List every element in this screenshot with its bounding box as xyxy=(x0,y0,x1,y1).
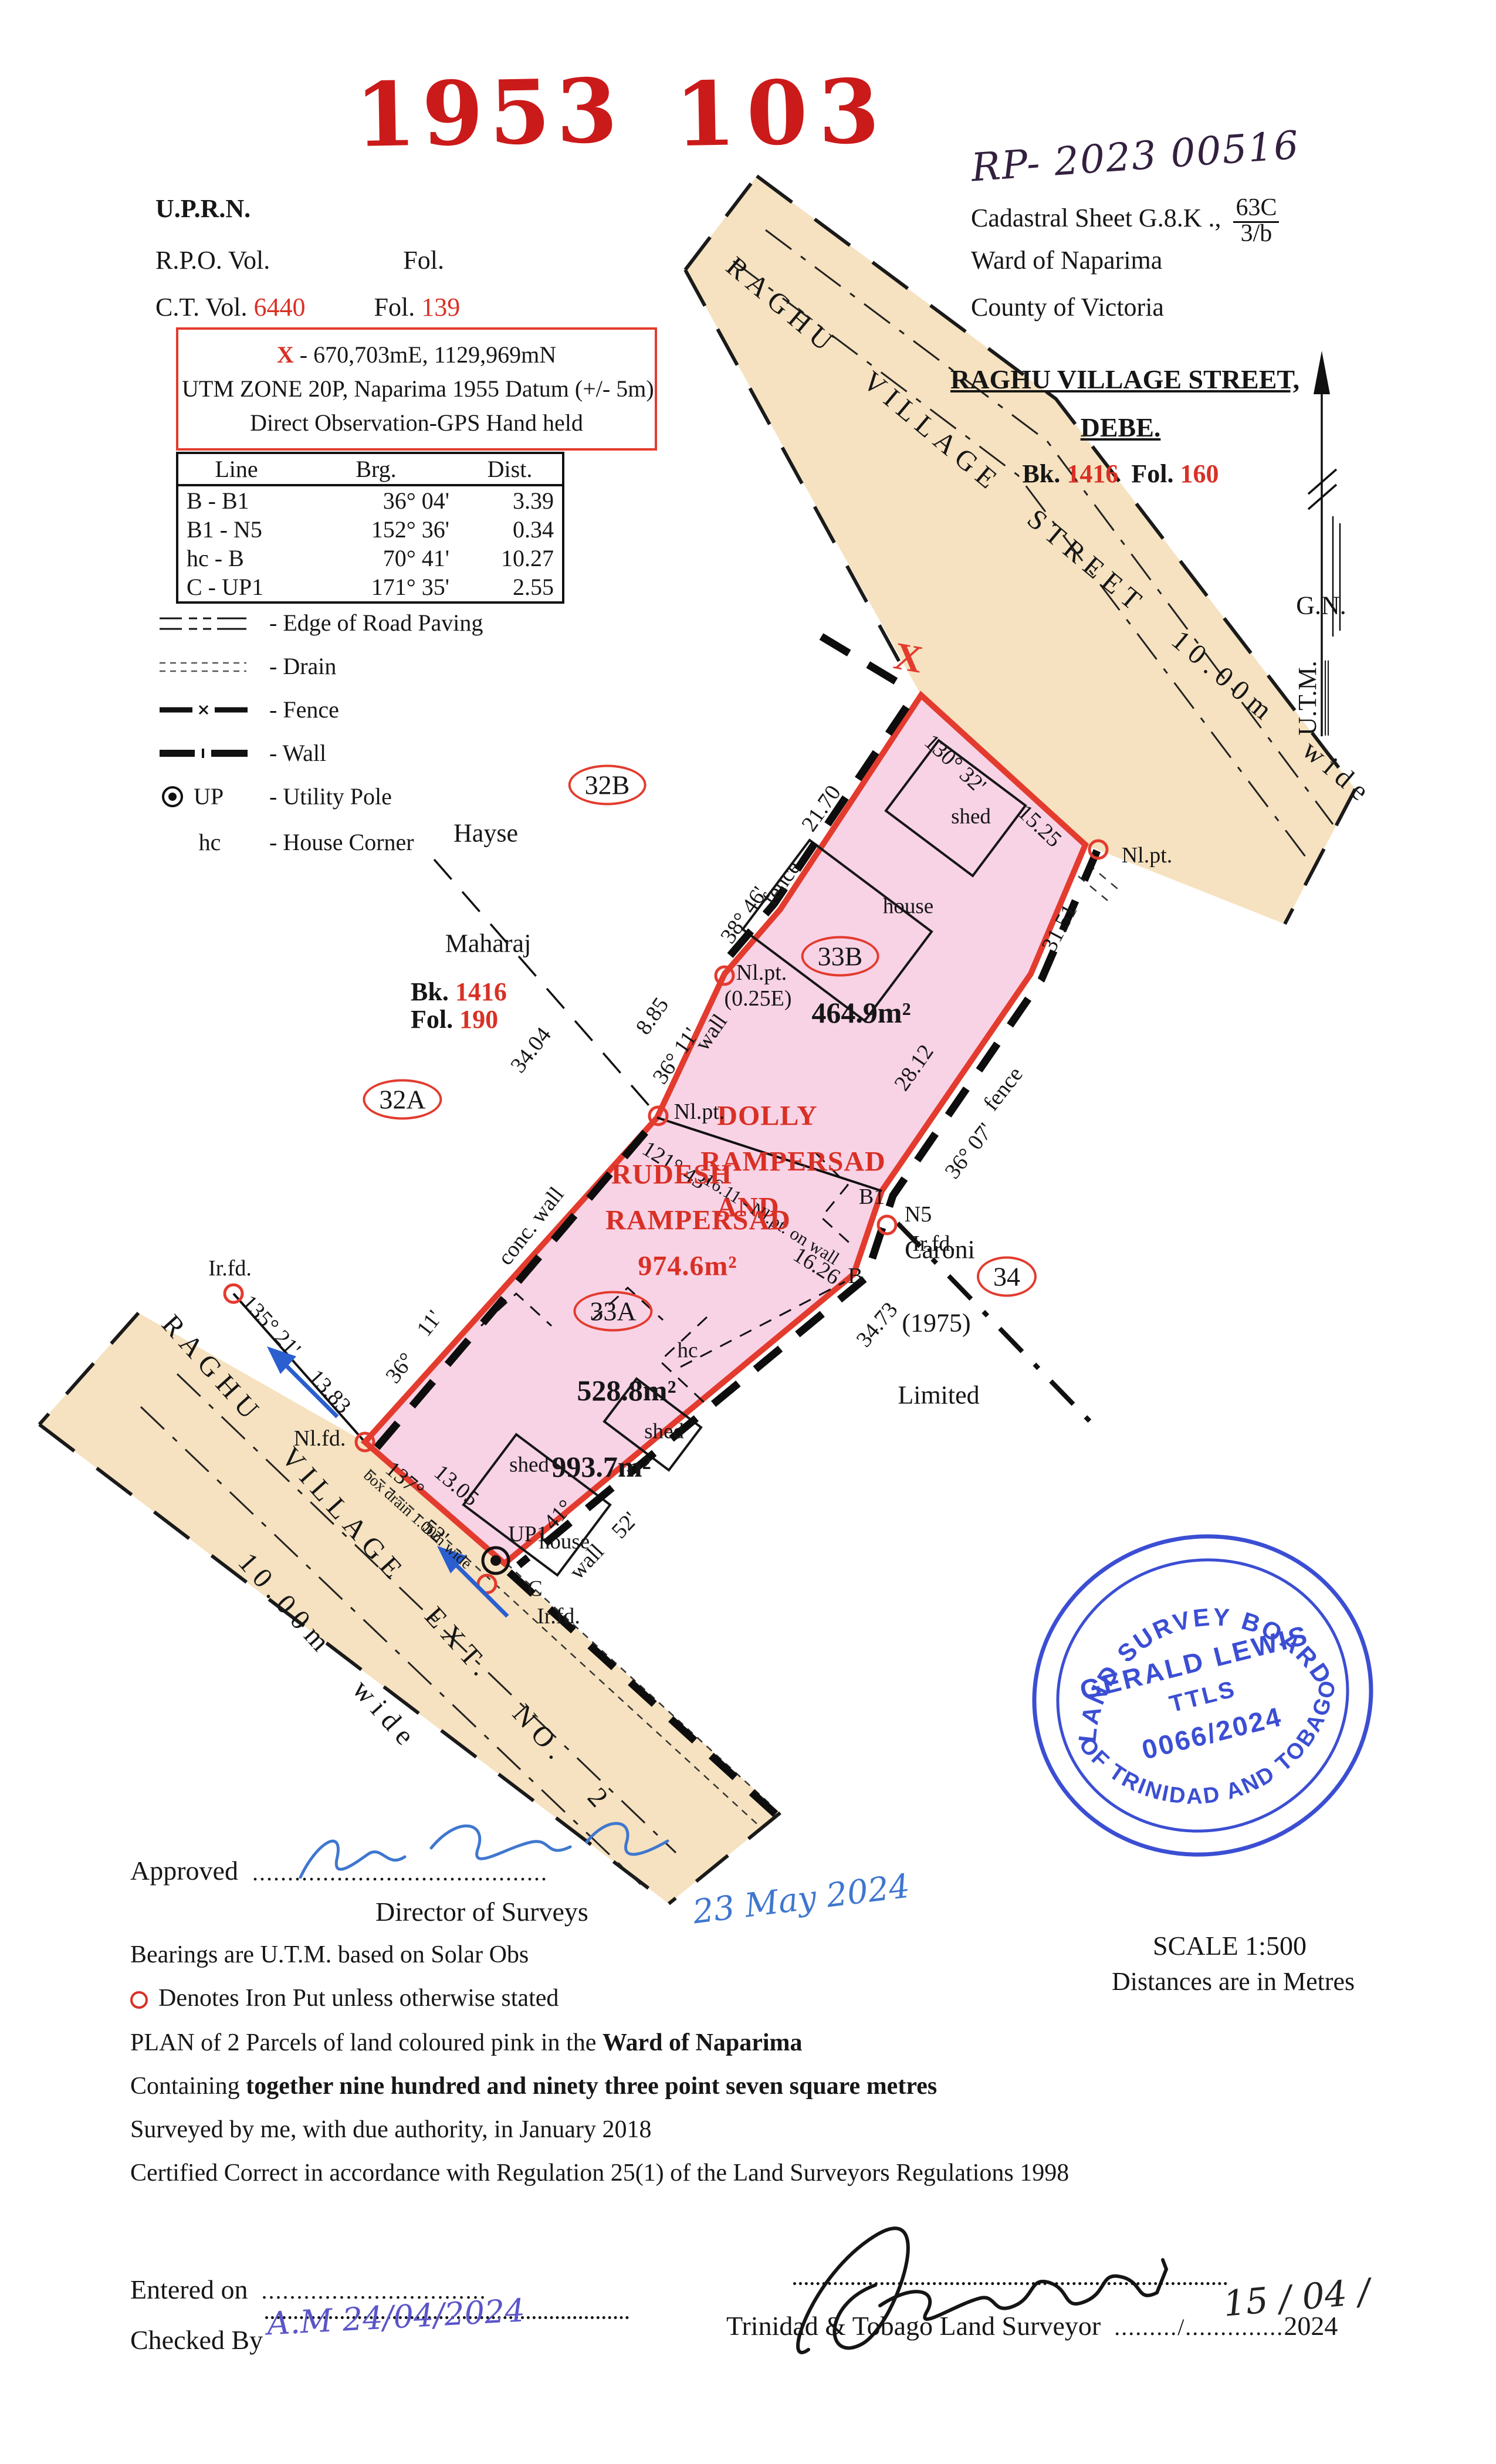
x-point-label: X xyxy=(277,341,294,368)
plan-label-nlpt-upper: Nl.pt. xyxy=(736,960,787,986)
uprn-label: U.P.R.N. xyxy=(155,194,251,224)
plan-text: PLAN of 2 Parcels of land coloured pink … xyxy=(130,2029,603,2056)
surveyor-label: Trinidad & Tobago Land Surveyor xyxy=(726,2311,1101,2341)
plan-label-shed-33a-r: shed xyxy=(644,1419,684,1444)
plan-label-pt-c: C xyxy=(527,1576,542,1602)
legend-wall: - Wall xyxy=(158,739,326,767)
plan-label-nlpt-road: Nl.pt. xyxy=(1122,842,1173,868)
cell: 152° 36' xyxy=(295,515,458,544)
col-line: Line xyxy=(177,453,295,485)
plan-label-shed-33b: shed xyxy=(951,804,991,830)
approved-dots: ........................................… xyxy=(252,1859,548,1886)
scale-label: SCALE 1:500 xyxy=(1153,1930,1307,1961)
fol-label: Fol. xyxy=(411,1005,453,1034)
bk-value: 1416 xyxy=(455,977,507,1006)
up-prefix: UP xyxy=(194,783,224,810)
cell: 2.55 xyxy=(458,573,563,603)
fol-value: 190 xyxy=(459,1005,498,1034)
survey-board-stamp: LAND SURVEY BOARD OF TRINIDAD AND TOBAGO… xyxy=(1000,1501,1405,1890)
plan-label-p33b: 33B xyxy=(801,936,879,977)
drain-icon xyxy=(158,655,261,678)
ct-vol-value: 6440 xyxy=(254,293,306,321)
stamp-number-left: 1953 xyxy=(354,59,624,167)
col-brg: Brg. xyxy=(295,453,458,485)
neighbor-bk: Bk. 1416 xyxy=(411,977,507,1007)
note-plan: PLAN of 2 Parcels of land coloured pink … xyxy=(130,2029,803,2057)
plan-label-gn: G.N. xyxy=(1296,591,1346,621)
ward-line: Ward of Naparima xyxy=(971,245,1162,275)
bk-label: Bk. xyxy=(1023,459,1061,488)
ct-fol-label: Fol. xyxy=(374,293,415,321)
legend-utility-pole: UP - Utility Pole xyxy=(158,783,392,810)
legend-label: - Drain xyxy=(269,652,336,680)
cell: B - B1 xyxy=(177,485,295,515)
fol-value: 160 xyxy=(1180,459,1219,488)
plan-label-area-33b: 464.9m² xyxy=(811,996,911,1030)
rpo-vol-label: R.P.O. Vol. xyxy=(155,246,270,275)
stamp-number-right: 103 xyxy=(673,60,891,167)
utm-method-line: Direct Observation-GPS Hand held xyxy=(182,406,651,440)
surveyor-signature-line xyxy=(793,2282,1227,2285)
bk-value: 1416 xyxy=(1067,459,1118,488)
ct-vol-label: C.T. Vol. xyxy=(155,293,248,321)
legend-fence: - Fence xyxy=(158,696,339,723)
containing-text: Containing xyxy=(130,2073,246,2100)
stamp-number: 0066/2024 xyxy=(1139,1701,1285,1765)
legend-drain: - Drain xyxy=(158,652,336,680)
plan-label-hayse: Hayse xyxy=(453,818,518,848)
distances-label: Distances are in Metres xyxy=(1112,1967,1355,1996)
cell: C - UP1 xyxy=(177,573,295,603)
cell: 36° 04' xyxy=(295,485,458,515)
fence-icon xyxy=(158,698,261,722)
cell: 70° 41' xyxy=(295,544,458,573)
cell: 0.34 xyxy=(458,515,563,544)
cadastral-num: 63C xyxy=(1233,194,1279,223)
plan-label-maharaj: Maharaj xyxy=(445,929,532,959)
edge-of-road-paving-icon xyxy=(158,611,261,635)
table-row: hc - B70° 41'10.27 xyxy=(177,544,563,573)
note-iron-text: Denotes Iron Put unless otherwise stated xyxy=(158,1985,559,2012)
plan-label-nlfd: Nl.fd. xyxy=(294,1426,346,1451)
plan-label-area-total: 993.7m² xyxy=(551,1450,651,1484)
street-title-2: DEBE. xyxy=(950,412,1291,443)
plan-label-caroni3: Limited xyxy=(898,1380,979,1410)
plan-label-nlpt-mid: Nl.pt. xyxy=(674,1099,725,1125)
survey-plan-page: LAND SURVEY BOARD OF TRINIDAD AND TOBAGO… xyxy=(0,0,1496,2464)
utm-coords-line: X - 670,703mE, 1129,969mN xyxy=(182,338,651,372)
plan-label-area-owner: 974.6m² xyxy=(638,1250,737,1282)
fol-label: Fol. xyxy=(1131,459,1173,488)
plan-label-n32a: 32A xyxy=(363,1079,442,1120)
ct-row: C.T. Vol. 6440 Fol. 139 xyxy=(155,292,460,322)
cell: 3.39 xyxy=(458,485,563,515)
rpo-row: R.P.O. Vol. Fol. xyxy=(155,245,444,275)
director-of-surveys: Director of Surveys xyxy=(375,1896,588,1927)
utm-coordinates-box: X - 670,703mE, 1129,969mN UTM ZONE 20P, … xyxy=(176,327,657,451)
plan-label-owner-dolly: DOLLY xyxy=(717,1100,817,1132)
utm-zone-line: UTM ZONE 20P, Naparima 1955 Datum (+/- 5… xyxy=(182,372,651,406)
table-row: B - B136° 04'3.39 xyxy=(177,485,563,515)
cell: 10.27 xyxy=(458,544,563,573)
cadastral-sheet-label: Cadastral Sheet G.8.K ., xyxy=(971,204,1221,232)
plan-ward-bold: Ward of Naparima xyxy=(603,2029,803,2056)
plan-label-n32b: 32B xyxy=(568,765,647,805)
bk-label: Bk. xyxy=(411,977,449,1006)
legend-label: - House Corner xyxy=(269,828,414,856)
plan-label-pt-b1: B1 xyxy=(859,1184,885,1210)
plan-label-hc-pt: hc xyxy=(678,1338,698,1363)
cadastral-fraction: 63C 3/b xyxy=(1233,195,1279,246)
plan-label-nlpt-offset: (0.25E) xyxy=(724,986,791,1011)
traverse-table: Line Brg. Dist. B - B136° 04'3.39 B1 - N… xyxy=(176,452,564,604)
street-title-1: RAGHU VILLAGE STREET, xyxy=(950,364,1291,395)
x-point-coords: - 670,703mE, 1129,969mN xyxy=(294,341,556,368)
rpo-fol-label: Fol. xyxy=(403,246,444,275)
legend-edge-of-road: - Edge of Road Paving xyxy=(158,609,483,637)
plan-label-owner-rudesh: RUDESH xyxy=(611,1159,732,1191)
note-containing: Containing together nine hundred and nin… xyxy=(130,2072,937,2100)
plan-label-pt-b: B xyxy=(848,1263,862,1289)
utility-pole-icon: UP xyxy=(158,783,261,810)
plan-label-up1: UP1 xyxy=(508,1521,548,1547)
note-bearings: Bearings are U.T.M. based on Solar Obs xyxy=(130,1941,529,1969)
approved-label: Approved xyxy=(130,1855,238,1886)
note-iron: Denotes Iron Put unless otherwise stated xyxy=(130,1984,559,2012)
cell: 171° 35' xyxy=(295,573,458,603)
legend-house-corner: hc - House Corner xyxy=(158,828,414,856)
plan-label-area-33a: 528.8m² xyxy=(577,1373,676,1407)
note-surveyed: Surveyed by me, with due authority, in J… xyxy=(130,2116,651,2144)
plan-label-irfd-c: Ir.fd. xyxy=(537,1603,580,1629)
plan-label-pt-n5: N5 xyxy=(905,1201,932,1227)
legend-label: - Fence xyxy=(269,696,339,723)
cell: hc - B xyxy=(177,544,295,573)
legend-label: - Wall xyxy=(269,739,326,767)
county-line: County of Victoria xyxy=(971,292,1164,322)
plan-label-caroni2: (1975) xyxy=(902,1308,970,1338)
table-row: B1 - N5152° 36'0.34 xyxy=(177,515,563,544)
wall-icon xyxy=(158,742,261,765)
plan-label-owner-ramp2: RAMPERSAD xyxy=(605,1204,791,1237)
iron-put-icon xyxy=(130,1991,148,2009)
ct-fol-value: 139 xyxy=(421,293,460,321)
legend-label: - Edge of Road Paving xyxy=(269,609,483,637)
plan-label-n34: 34 xyxy=(977,1257,1037,1297)
checked-by: Checked By xyxy=(130,2324,263,2355)
table-row: C - UP1171° 35'2.55 xyxy=(177,573,563,603)
plan-label-shed-33a: shed xyxy=(509,1453,549,1478)
legend-label: - Utility Pole xyxy=(269,783,392,810)
neighbor-fol: Fol. 190 xyxy=(411,1004,498,1034)
hc-prefix: hc xyxy=(199,828,221,856)
cell: B1 - N5 xyxy=(177,515,295,544)
plan-label-caroni1: Caroni xyxy=(905,1235,975,1265)
plan-label-p33a: 33A xyxy=(573,1291,652,1332)
plan-label-utm: U.T.M. xyxy=(1292,661,1329,736)
cadastral-sheet-line: Cadastral Sheet G.8.K ., 63C 3/b xyxy=(971,195,1279,246)
plan-label-house-33b: house xyxy=(883,894,933,919)
cadastral-den: 3/b xyxy=(1241,220,1272,247)
plan-label-irfd-top: Ir.fd. xyxy=(208,1255,252,1281)
entered-label: Entered on xyxy=(130,2275,248,2304)
containing-bold: together nine hundred and ninety three p… xyxy=(246,2073,937,2100)
col-dist: Dist. xyxy=(458,453,563,485)
note-certified: Certified Correct in accordance with Reg… xyxy=(130,2159,1069,2187)
hc-prefix-wrap: hc xyxy=(158,828,261,856)
